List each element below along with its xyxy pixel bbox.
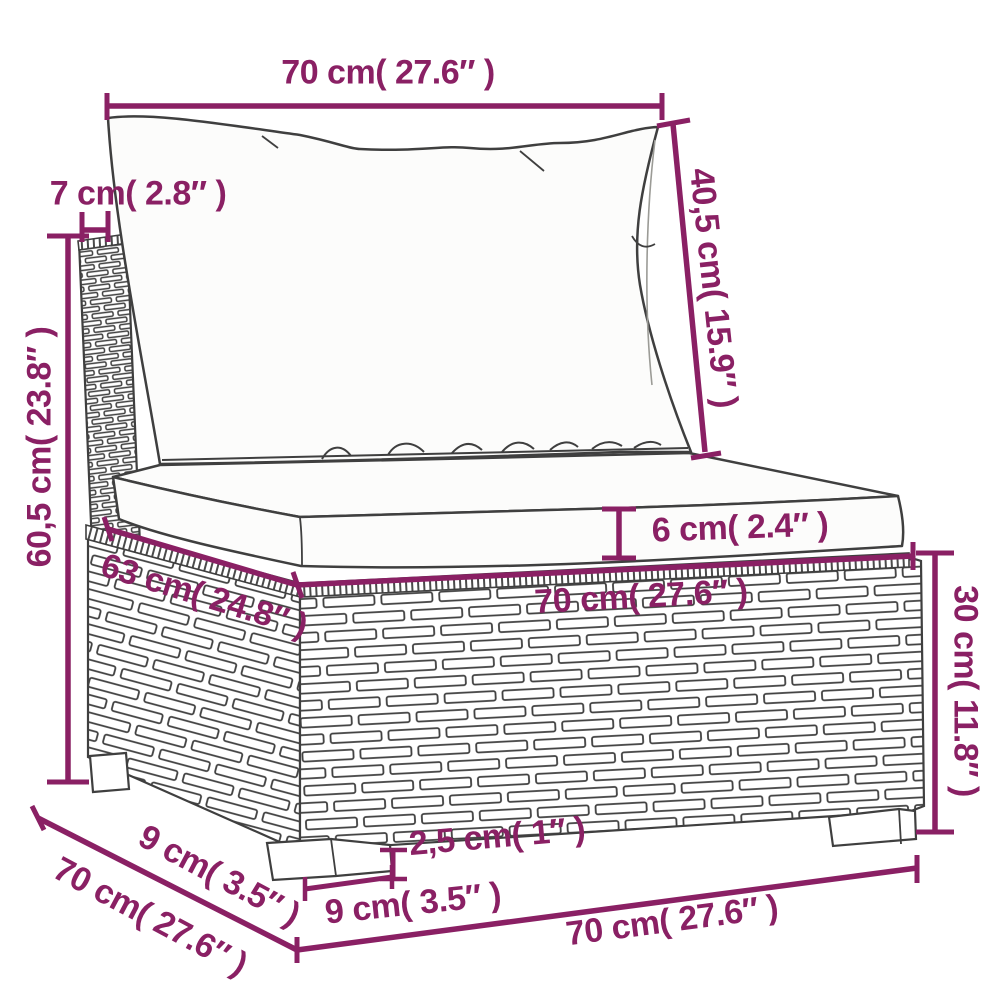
back-cushion [108,116,691,464]
dim-label-top-width: 70 cm( 27.6″ ) [281,54,494,93]
dim-label-base-height: 30 cm( 11.8″ ) [946,585,985,797]
dim-label-total-height: 60,5 cm( 23.8″ ) [21,327,60,568]
dimension-diagram: 70 cm( 27.6″ ) 40,5 cm( 15.9″ ) 7 cm( 2.… [0,0,1000,1000]
dim-label-cushion-thickness: 6 cm( 2.4″ ) [651,505,829,550]
dim-label-post-width: 7 cm( 2.8″ ) [50,175,227,214]
